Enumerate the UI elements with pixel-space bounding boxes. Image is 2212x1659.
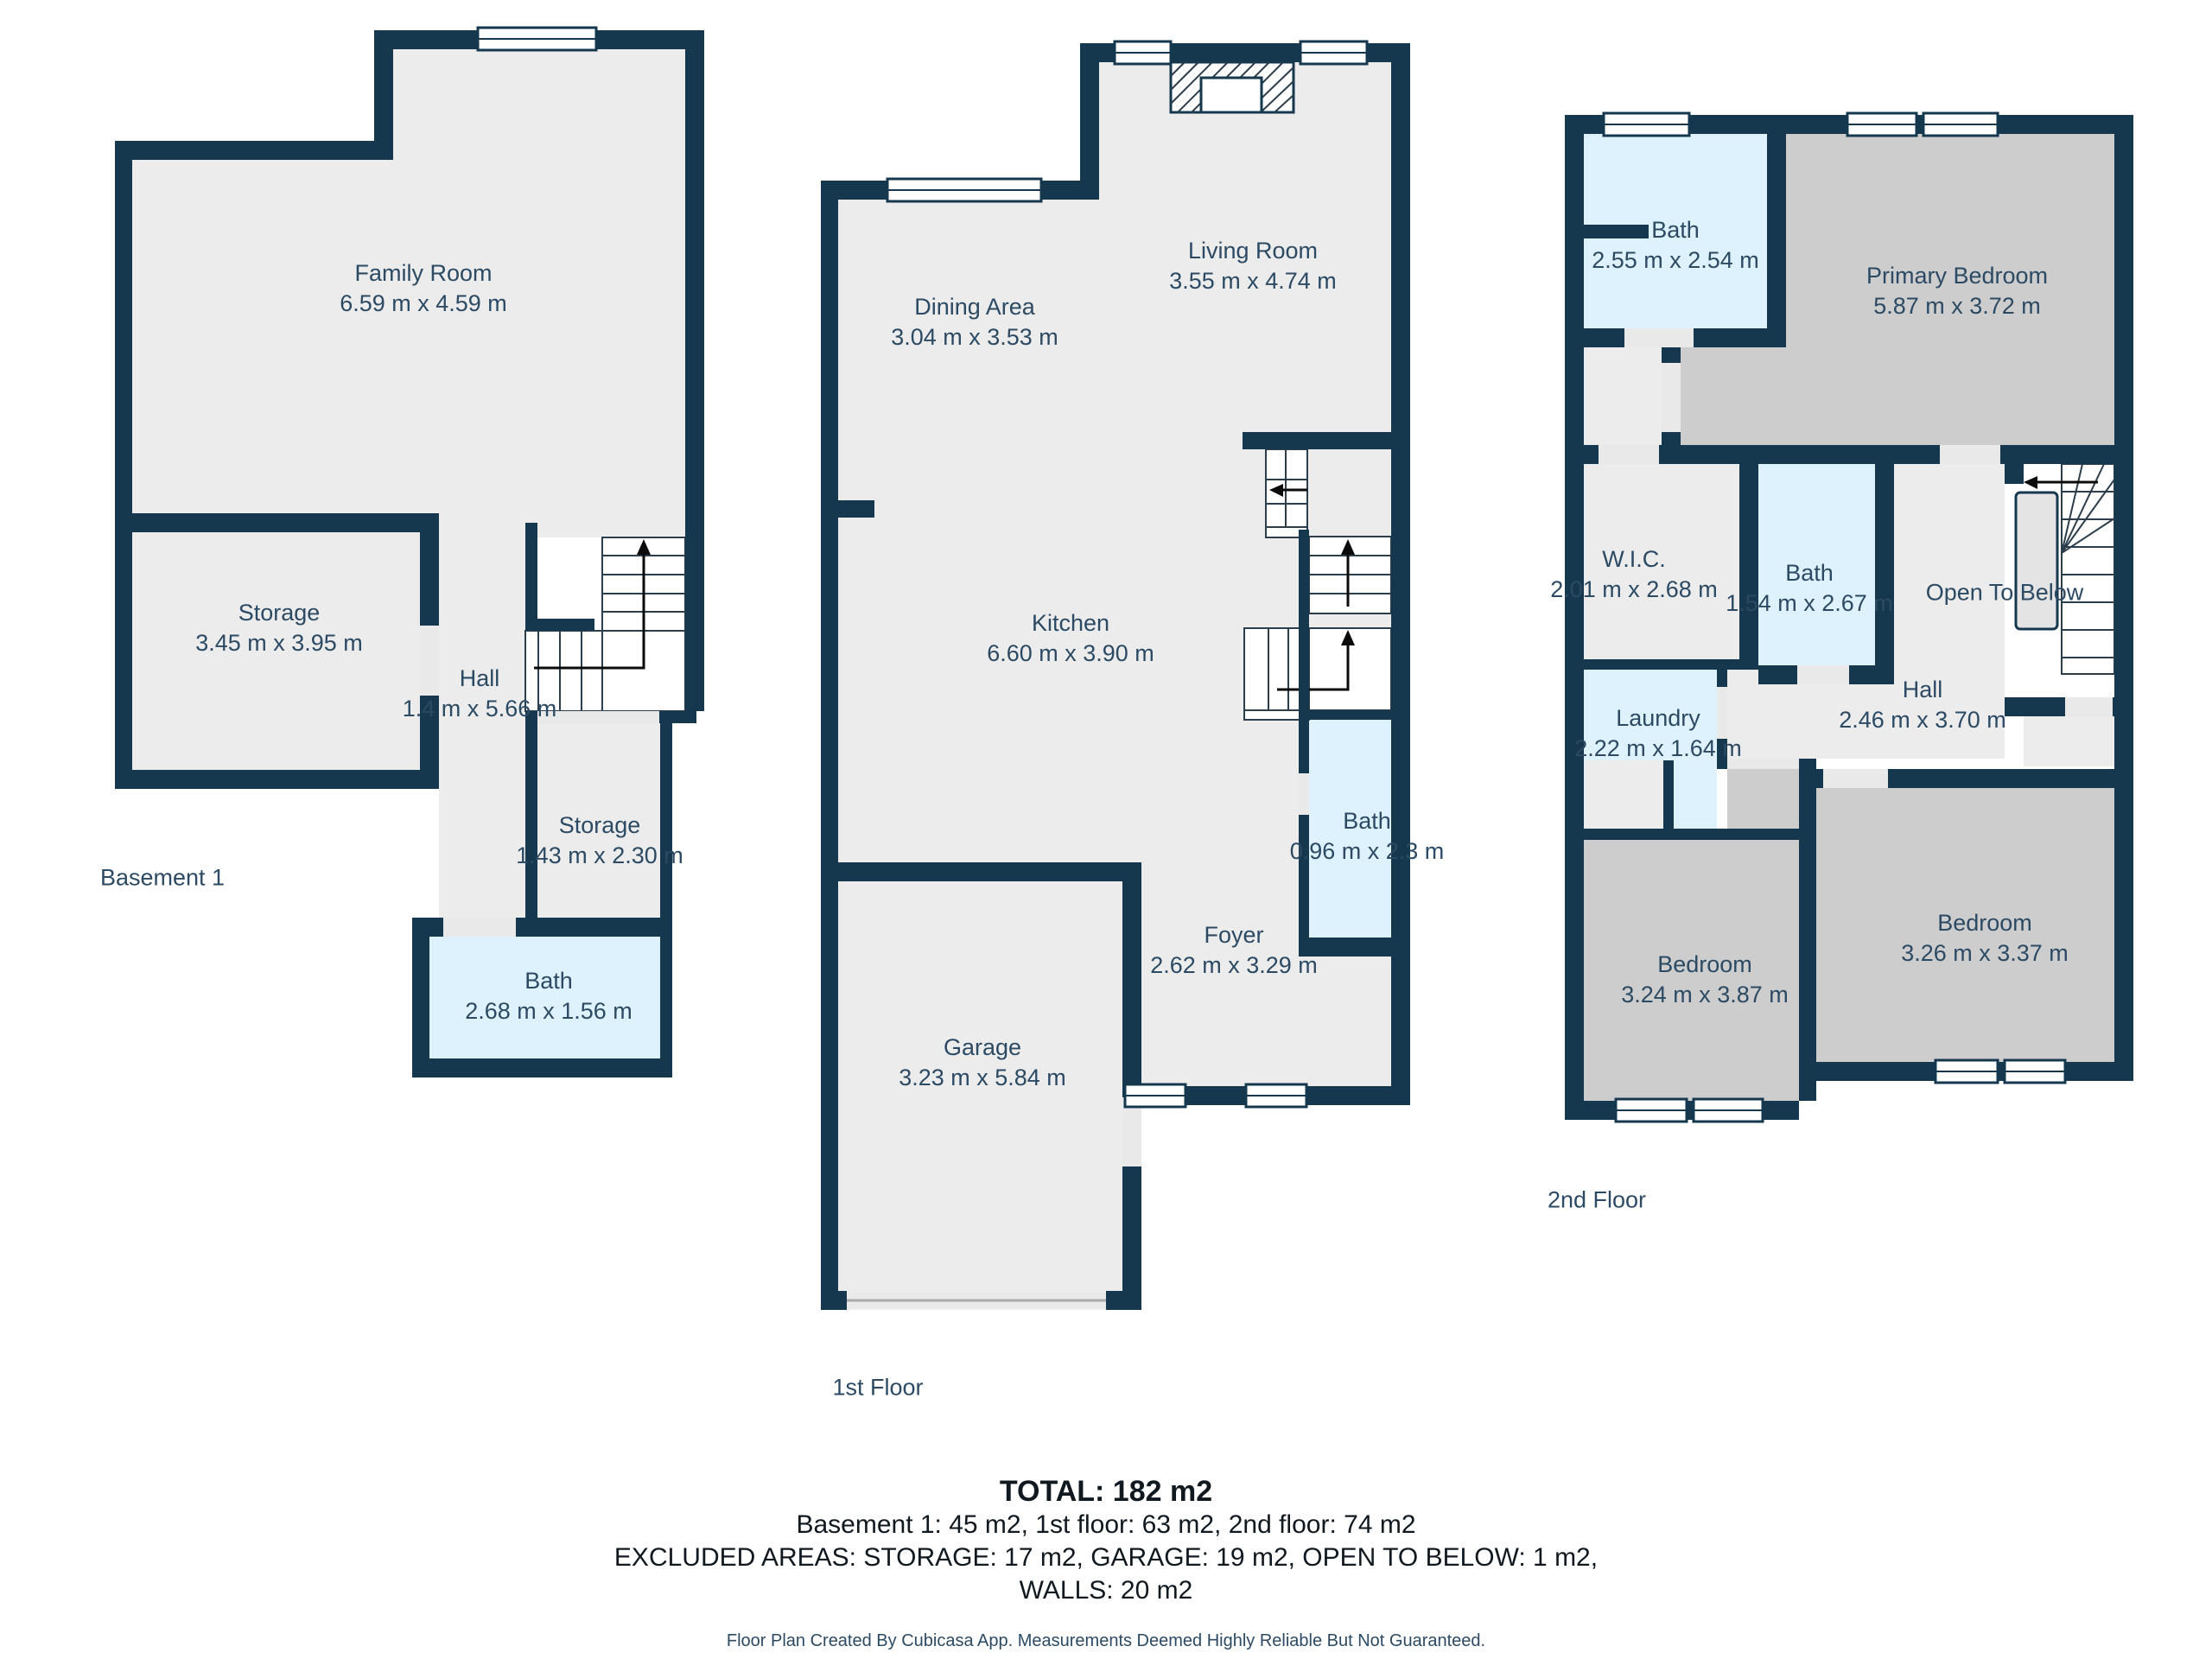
room-label-foyer: Foyer 2.62 m x 3.29 m [1150, 920, 1318, 981]
basement-floorplan [115, 26, 720, 1106]
room-label-storage: Storage 3.45 m x 3.95 m [195, 598, 363, 658]
room-label-bath-1f: Bath 0.96 m x 2.3 m [1290, 806, 1445, 867]
summary-disclaimer: Floor Plan Created By Cubicasa App. Meas… [0, 1630, 2212, 1652]
summary-per-floor: Basement 1: 45 m2, 1st floor: 63 m2, 2nd… [0, 1509, 2212, 1541]
room-label-garage: Garage 3.23 m x 5.84 m [899, 1033, 1066, 1093]
room-hall [439, 513, 525, 937]
floor-plan-page: Family Room 6.59 m x 4.59 m Storage 3.45… [0, 0, 2212, 1659]
room-label-bath-2f-mid: Bath 1.54 m x 2.67 m [1726, 558, 1893, 619]
basement-window [478, 28, 596, 50]
first-fireplace [1171, 62, 1294, 112]
area-summary: TOTAL: 182 m2 Basement 1: 45 m2, 1st flo… [0, 1474, 2212, 1652]
room-label-open-to-below: Open To Below [1926, 578, 2084, 608]
room-label-hall-basement: Hall 1.4 m x 5.66 m [403, 664, 557, 724]
room-label-bedroom-left: Bedroom 3.24 m x 3.87 m [1621, 950, 1789, 1010]
room-label-bath-basement: Bath 2.68 m x 1.56 m [465, 966, 632, 1027]
room-storage [132, 160, 420, 770]
summary-total: TOTAL: 182 m2 [0, 1474, 2212, 1509]
room-label-living-room: Living Room 3.55 m x 4.74 m [1169, 236, 1337, 296]
summary-excluded: EXCLUDED AREAS: STORAGE: 17 m2, GARAGE: … [0, 1541, 2212, 1574]
room-label-primary-bedroom: Primary Bedroom 5.87 m x 3.72 m [1866, 261, 2048, 321]
summary-walls: WALLS: 20 m2 [0, 1574, 2212, 1607]
room-label-laundry: Laundry 2.22 m x 1.64 m [1574, 703, 1742, 764]
room-garage [838, 881, 1122, 1310]
floor-title-second: 2nd Floor [1548, 1187, 1646, 1214]
room-label-bedroom-right: Bedroom 3.26 m x 3.37 m [1901, 908, 2069, 969]
first-floor-floorplan [821, 26, 1434, 1322]
room-label-bath-2f-top: Bath 2.55 m x 2.54 m [1592, 215, 1759, 276]
floor-title-basement: Basement 1 [100, 865, 225, 892]
room-label-kitchen: Kitchen 6.60 m x 3.90 m [987, 608, 1154, 669]
room-label-wic: W.I.C. 2.01 m x 2.68 m [1550, 544, 1718, 605]
room-closet [2024, 716, 2114, 766]
room-hall-upper [1584, 347, 1662, 445]
room-label-dining-area: Dining Area 3.04 m x 3.53 m [891, 292, 1058, 353]
floor-title-first: 1st Floor [832, 1375, 923, 1402]
room-label-storage-2: Storage 1.43 m x 2.30 m [516, 810, 683, 871]
room-label-family-room: Family Room 6.59 m x 4.59 m [340, 258, 507, 319]
room-label-hall-2f: Hall 2.46 m x 3.70 m [1839, 675, 2006, 735]
